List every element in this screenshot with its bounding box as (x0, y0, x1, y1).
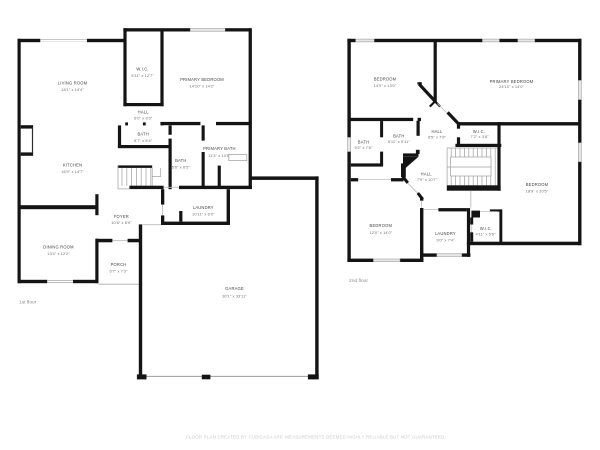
svg-text:7'2" x 3'8": 7'2" x 3'8" (471, 134, 490, 139)
svg-text:LAUNDRY: LAUNDRY (435, 231, 456, 236)
svg-text:6'7" x 7'3": 6'7" x 7'3" (109, 268, 128, 273)
svg-text:HALL: HALL (138, 109, 150, 114)
svg-text:KITCHEN: KITCHEN (63, 162, 82, 167)
svg-text:BEDROOM: BEDROOM (526, 182, 549, 187)
svg-text:9'2" x 7'6": 9'2" x 7'6" (354, 145, 373, 150)
svg-text:7'9" x 10'7": 7'9" x 10'7" (417, 177, 438, 182)
svg-text:14'10" x 14'2": 14'10" x 14'2" (190, 84, 215, 89)
svg-text:5'11" x 5'11": 5'11" x 5'11" (388, 139, 411, 144)
svg-text:13'4" x 12'2": 13'4" x 12'2" (47, 251, 70, 256)
svg-text:W.I.C.: W.I.C. (480, 226, 492, 231)
svg-text:BEDROOM: BEDROOM (370, 223, 393, 228)
svg-text:1st floor: 1st floor (19, 299, 37, 305)
svg-text:HALL: HALL (431, 129, 443, 134)
svg-text:16'9" x 14'7": 16'9" x 14'7" (61, 169, 84, 174)
svg-text:LAUNDRY: LAUNDRY (193, 205, 214, 210)
svg-text:W.I.C.: W.I.C. (136, 66, 148, 71)
svg-text:10'8" x 8'9": 10'8" x 8'9" (111, 220, 132, 225)
svg-text:BATH: BATH (358, 139, 369, 144)
svg-text:14'0" x 13'0": 14'0" x 13'0" (374, 83, 397, 88)
svg-text:PORCH: PORCH (111, 262, 127, 267)
svg-text:6'0" x 3'3": 6'0" x 3'3" (134, 116, 153, 121)
svg-text:4'11" x 5'6": 4'11" x 5'6" (476, 231, 497, 236)
svg-text:30'1" x 33'11": 30'1" x 33'11" (222, 294, 247, 299)
svg-text:BATH: BATH (393, 133, 404, 138)
svg-text:BATH: BATH (175, 158, 186, 163)
svg-text:DINING ROOM: DINING ROOM (43, 244, 74, 249)
svg-text:FLOOR PLAN CREATED BY CUBICASA: FLOOR PLAN CREATED BY CUBICASA APP. MEAS… (186, 435, 446, 440)
svg-text:LIVING ROOM: LIVING ROOM (58, 81, 88, 86)
svg-text:FOYER: FOYER (114, 214, 129, 219)
svg-text:11'3" x 10'5": 11'3" x 10'5" (208, 153, 231, 158)
svg-text:5'11" x 12'7": 5'11" x 12'7" (131, 73, 154, 78)
svg-text:10'11" x 6'0": 10'11" x 6'0" (192, 211, 215, 216)
svg-text:HALL: HALL (421, 171, 433, 176)
svg-text:12'0" x 14'0": 12'0" x 14'0" (369, 230, 392, 235)
svg-text:18'9" x 20'5": 18'9" x 20'5" (526, 189, 549, 194)
svg-text:24'10" x 14'0": 24'10" x 14'0" (499, 84, 524, 89)
svg-text:5'6" x 6'5": 5'6" x 6'5" (172, 164, 191, 169)
svg-text:PRIMARY BATH: PRIMARY BATH (203, 146, 236, 151)
svg-text:PRIMARY BEDROOM: PRIMARY BEDROOM (180, 77, 224, 82)
svg-text:BATH: BATH (137, 131, 148, 136)
svg-text:BEDROOM: BEDROOM (374, 76, 397, 81)
svg-text:9'0" x 7'4": 9'0" x 7'4" (436, 238, 455, 243)
svg-text:GARAGE: GARAGE (225, 286, 244, 291)
svg-text:8'7" x 5'4": 8'7" x 5'4" (134, 138, 153, 143)
svg-text:18'1" x 14'4": 18'1" x 14'4" (61, 87, 84, 92)
svg-text:6'5" x 7'9": 6'5" x 7'9" (428, 135, 447, 140)
svg-text:2nd floor: 2nd floor (349, 278, 368, 284)
